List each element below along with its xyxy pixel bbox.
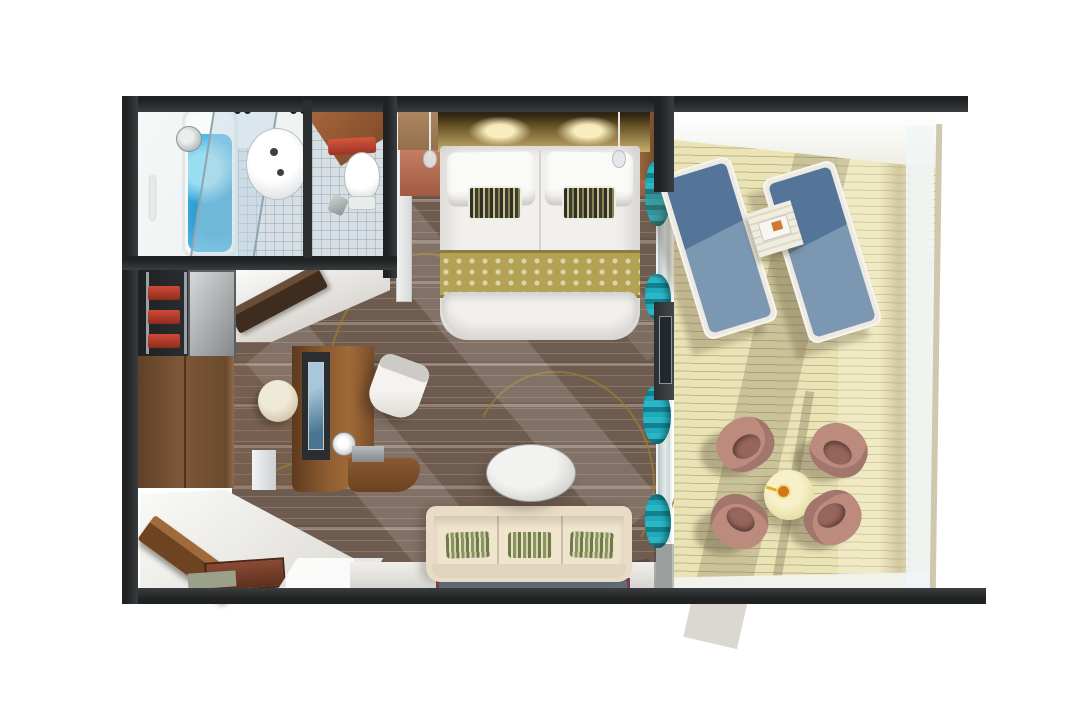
nightstand-left	[400, 150, 444, 196]
wall-bathroom-bedroom	[383, 96, 397, 278]
shelf-towels	[148, 310, 180, 324]
accent-pillow-left	[468, 186, 522, 220]
sofa-pillow	[446, 531, 491, 559]
closet-rod	[184, 272, 187, 354]
book	[757, 214, 792, 242]
sofa-pillow	[508, 532, 552, 558]
toilet	[344, 152, 380, 200]
coffee-table	[486, 444, 576, 502]
towel-bar	[150, 176, 155, 220]
sofa-pillow	[570, 531, 615, 559]
sofa-cushion-seam	[497, 516, 499, 568]
basin	[246, 128, 308, 200]
shelf-towels	[148, 286, 180, 300]
book-cover-art	[771, 220, 783, 232]
sofa	[426, 506, 632, 582]
headboard-light	[556, 116, 620, 146]
drink-glass	[778, 486, 789, 497]
wall-wc-divider	[303, 100, 312, 258]
shower-head	[176, 126, 202, 152]
leaning-mirror	[188, 270, 236, 358]
entry-mat-small	[188, 570, 237, 589]
desk-tray	[352, 446, 384, 462]
wall-top	[122, 96, 968, 112]
teal-curtain	[645, 494, 671, 548]
wardrobe-door-split	[184, 356, 186, 488]
wall-balcony-top	[654, 96, 674, 192]
bed-center-seam	[539, 150, 541, 250]
shelf-towels	[148, 334, 180, 348]
wall-left	[122, 96, 138, 604]
tv-column-screen	[659, 316, 672, 384]
sofa-cushion-seam	[561, 516, 563, 568]
pendant-lamp	[423, 150, 437, 168]
pendant-lamp	[612, 150, 626, 168]
headboard-light	[468, 116, 532, 146]
tv-screen	[308, 362, 324, 450]
bed-runner	[440, 250, 640, 298]
floor-plan-scene	[0, 0, 1067, 711]
faucet	[270, 148, 278, 156]
wall-bathroom-corridor	[122, 256, 397, 270]
red-towel	[328, 137, 377, 155]
desk-return	[348, 458, 420, 492]
wall-bottom	[124, 588, 986, 604]
toilet-tank	[348, 196, 376, 210]
sofa-front-edge	[432, 564, 626, 578]
bed-duvet-foot	[442, 292, 638, 340]
wall-balcony-lower	[654, 544, 674, 592]
stool	[258, 380, 298, 422]
faucet-handle	[277, 169, 284, 176]
desk-drawer-unit	[252, 450, 276, 490]
accent-pillow-right	[562, 186, 616, 220]
